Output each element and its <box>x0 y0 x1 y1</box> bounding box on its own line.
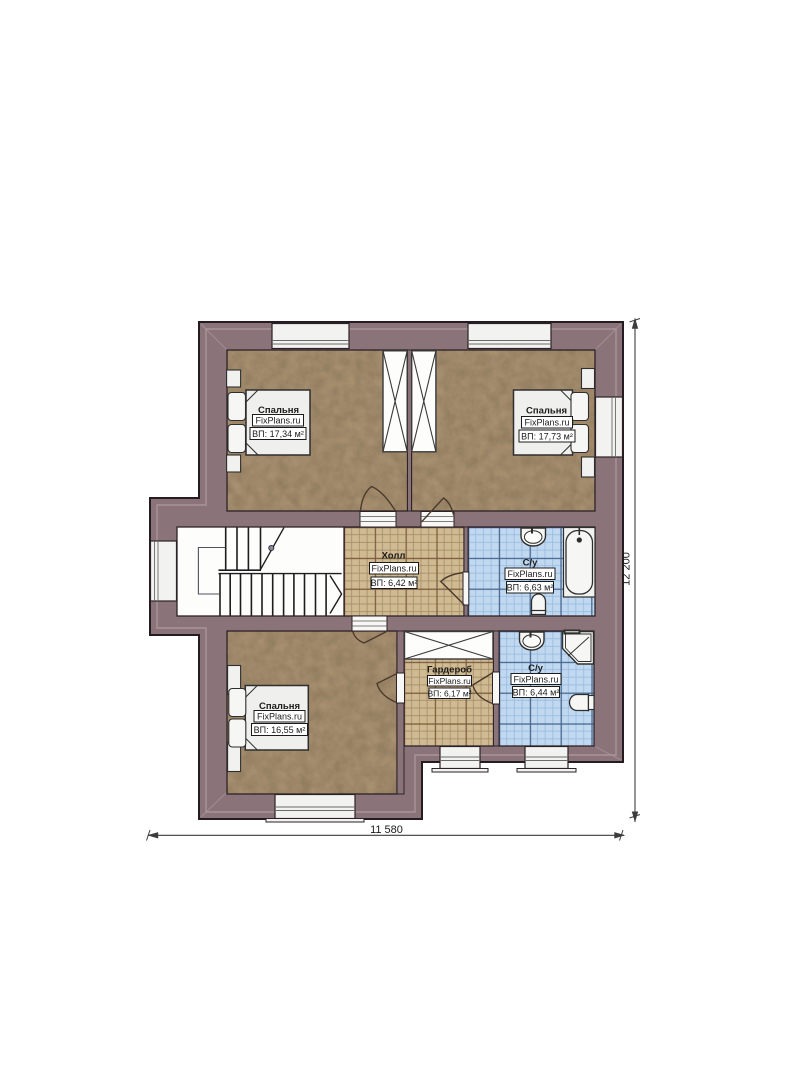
svg-text:С/у: С/у <box>523 558 539 569</box>
svg-text:С/у: С/у <box>528 663 544 674</box>
svg-text:11 580: 11 580 <box>370 824 403 836</box>
svg-text:ВП: 17,34 м²: ВП: 17,34 м² <box>252 429 304 439</box>
svg-text:FixPlans.ru: FixPlans.ru <box>524 418 569 428</box>
svg-text:Холл: Холл <box>382 551 406 562</box>
svg-text:ВП: 17,73 м²: ВП: 17,73 м² <box>521 432 573 442</box>
svg-text:ВП: 6,63 м²: ВП: 6,63 м² <box>507 583 554 593</box>
svg-text:ВП: 6,42 м²: ВП: 6,42 м² <box>371 578 418 588</box>
svg-text:FixPlans.ru: FixPlans.ru <box>507 569 552 579</box>
svg-text:ВП: 6,44 м²: ВП: 6,44 м² <box>513 688 560 698</box>
svg-text:FixPlans.ru: FixPlans.ru <box>428 676 471 686</box>
svg-text:FixPlans.ru: FixPlans.ru <box>255 416 300 426</box>
svg-text:Гардероб: Гардероб <box>427 665 472 676</box>
svg-text:ВП: 16,55 м²: ВП: 16,55 м² <box>254 725 306 735</box>
svg-text:FixPlans.ru: FixPlans.ru <box>513 675 558 685</box>
svg-text:Спальня: Спальня <box>526 406 567 417</box>
svg-text:ВП: 6,17 м²: ВП: 6,17 м² <box>427 689 471 699</box>
svg-text:FixPlans.ru: FixPlans.ru <box>257 712 302 722</box>
svg-text:FixPlans.ru: FixPlans.ru <box>371 564 416 574</box>
svg-text:12 200: 12 200 <box>621 552 633 586</box>
